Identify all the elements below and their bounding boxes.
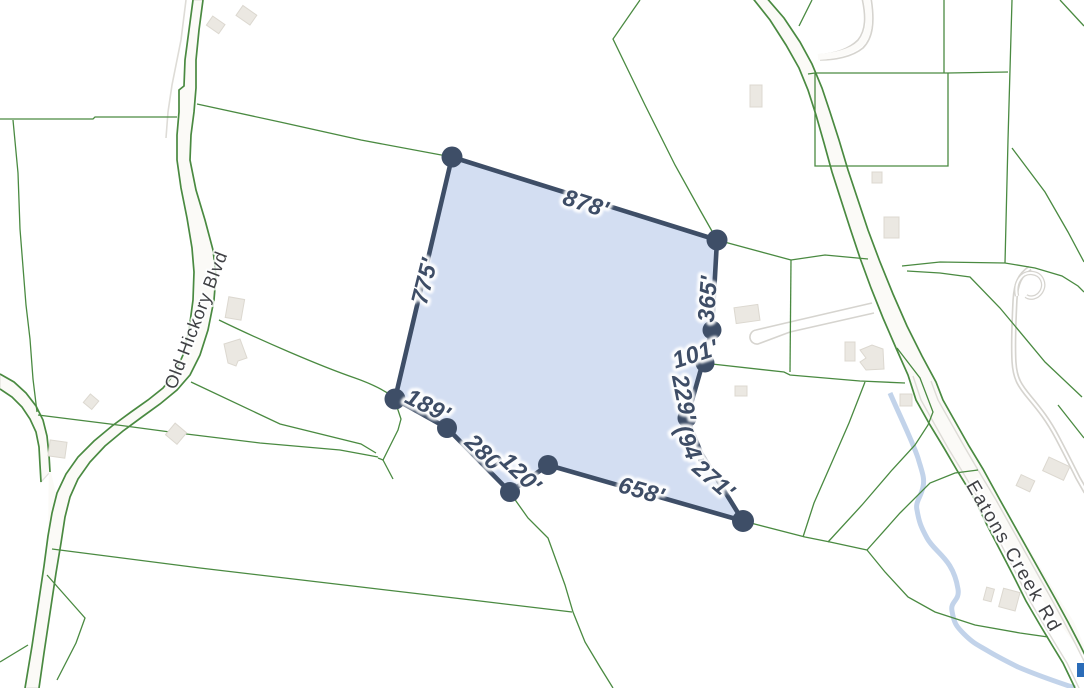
- svg-text:365': 365': [693, 274, 722, 323]
